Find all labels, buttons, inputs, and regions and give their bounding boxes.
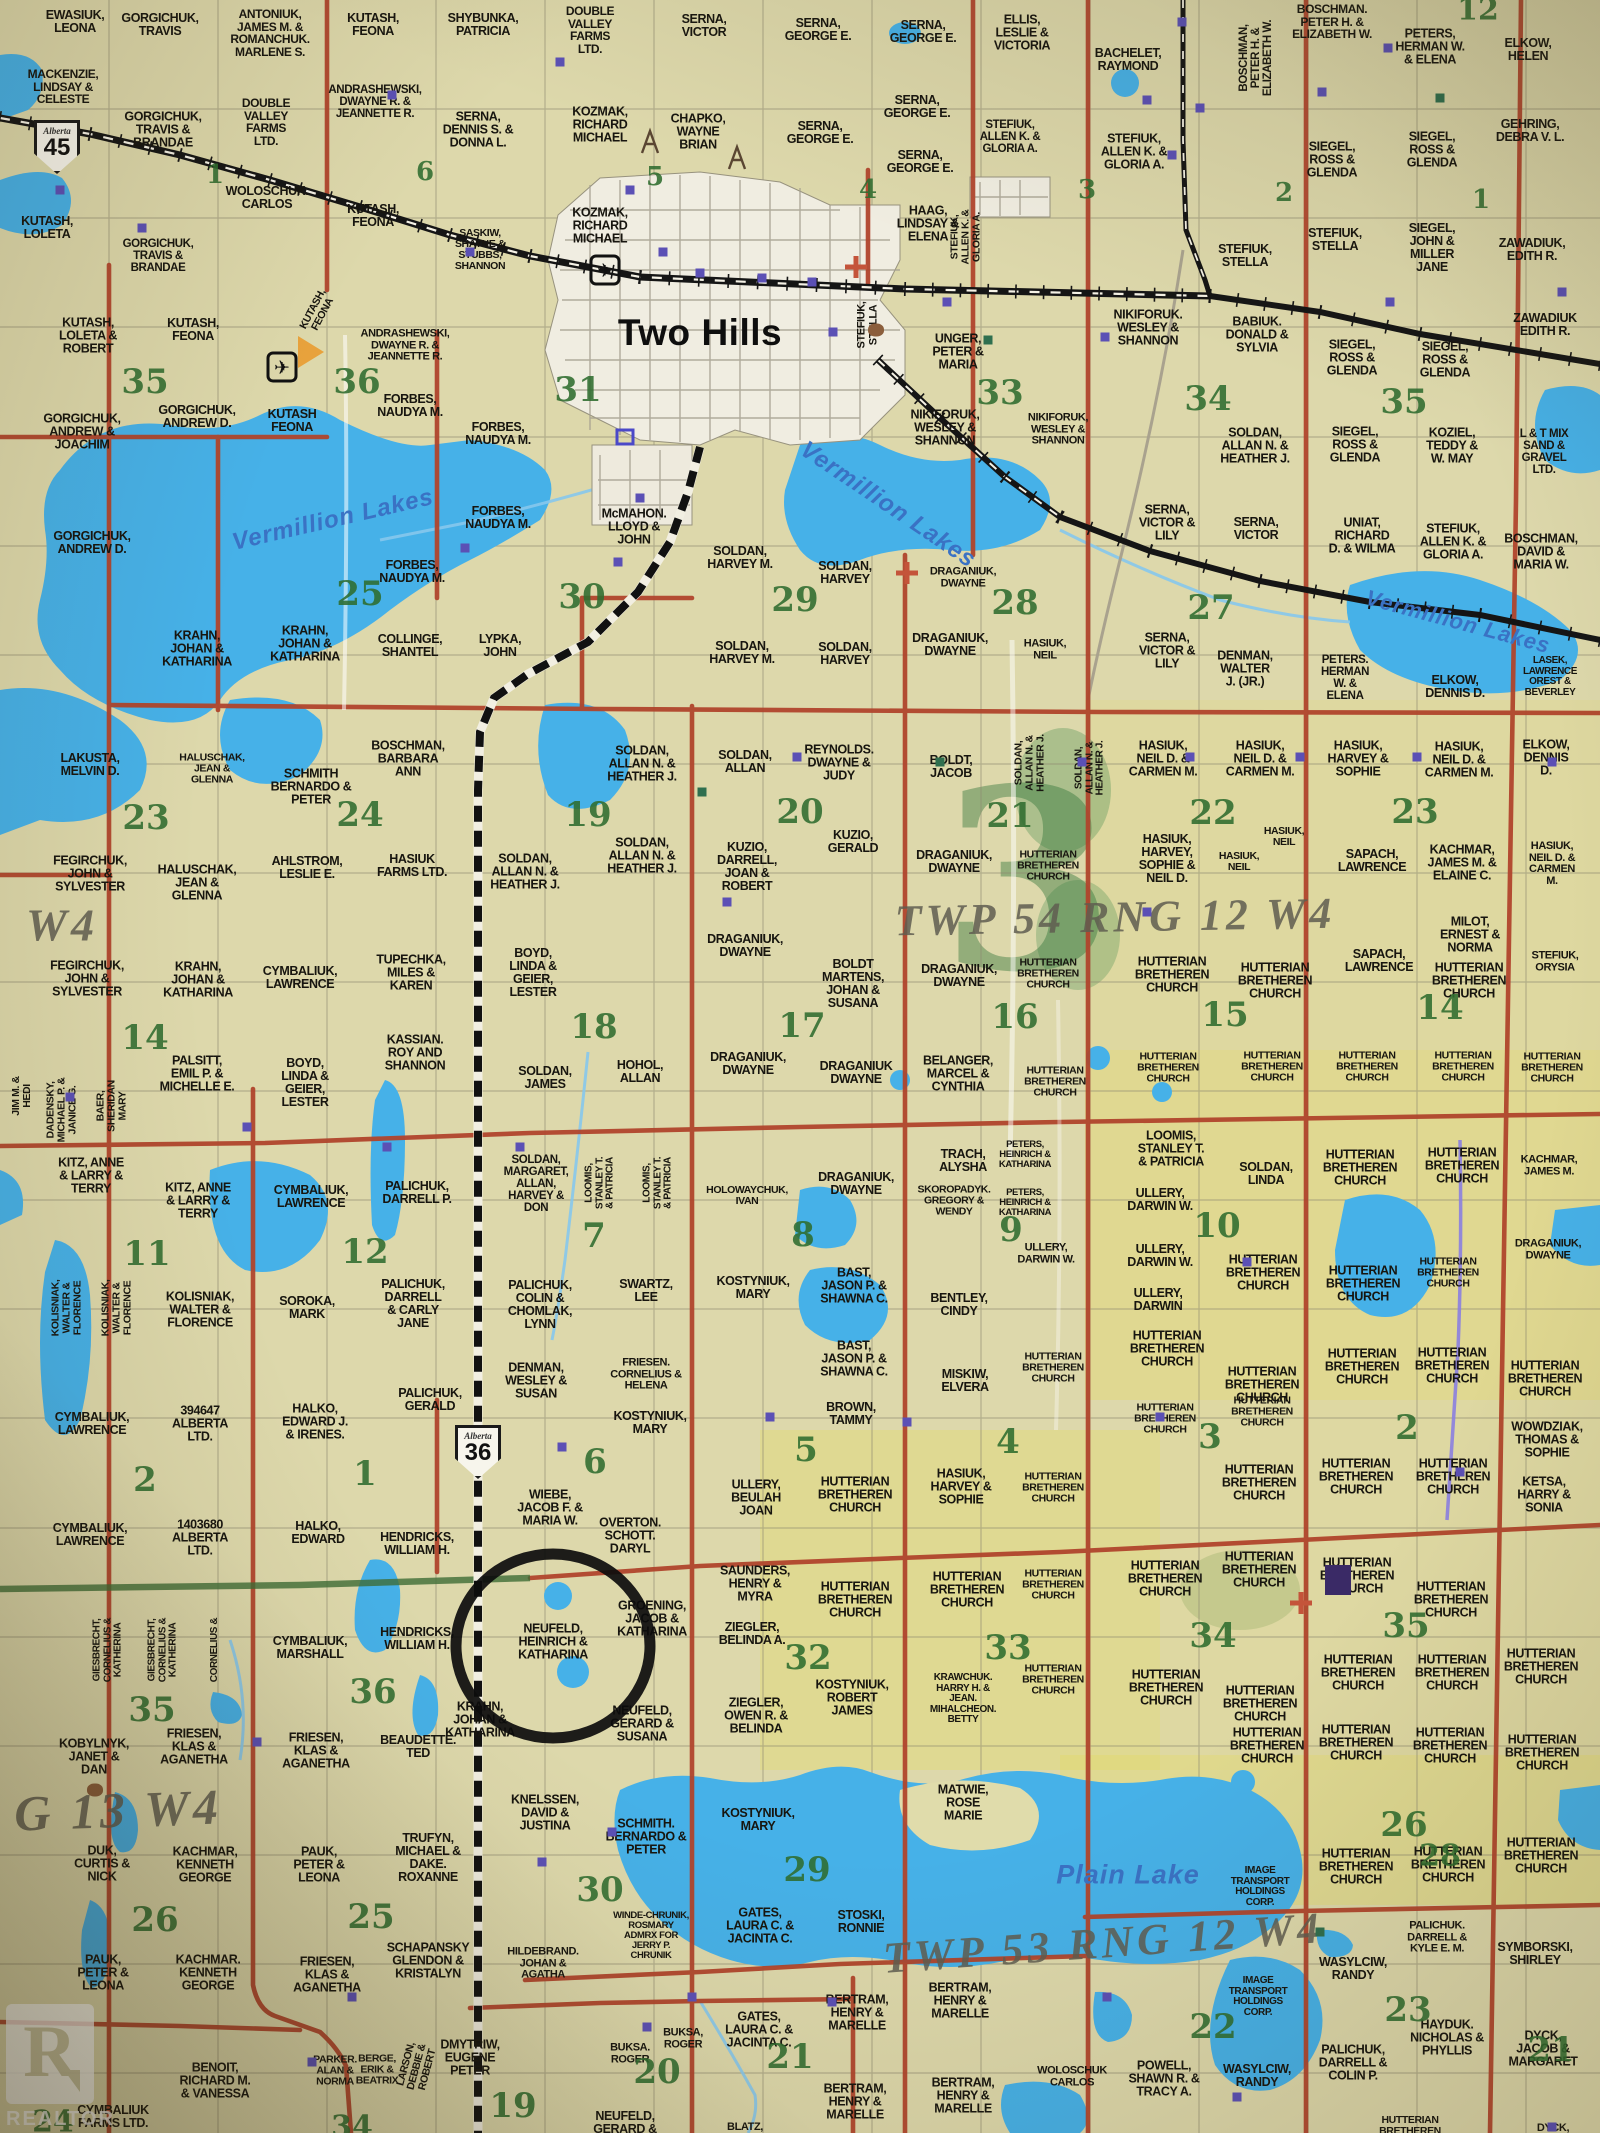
realtor-wordmark: REALTOR <box>6 2108 98 2131</box>
realtor-watermark: R REALTOR <box>6 2004 98 2131</box>
highlight-circle-annotation <box>456 1554 650 1738</box>
map-photo: 3 <box>0 0 1600 2133</box>
realtor-logo: R <box>6 2004 94 2104</box>
annotation-layer <box>0 0 1600 2133</box>
realtor-logo-triangle <box>64 2070 80 2092</box>
